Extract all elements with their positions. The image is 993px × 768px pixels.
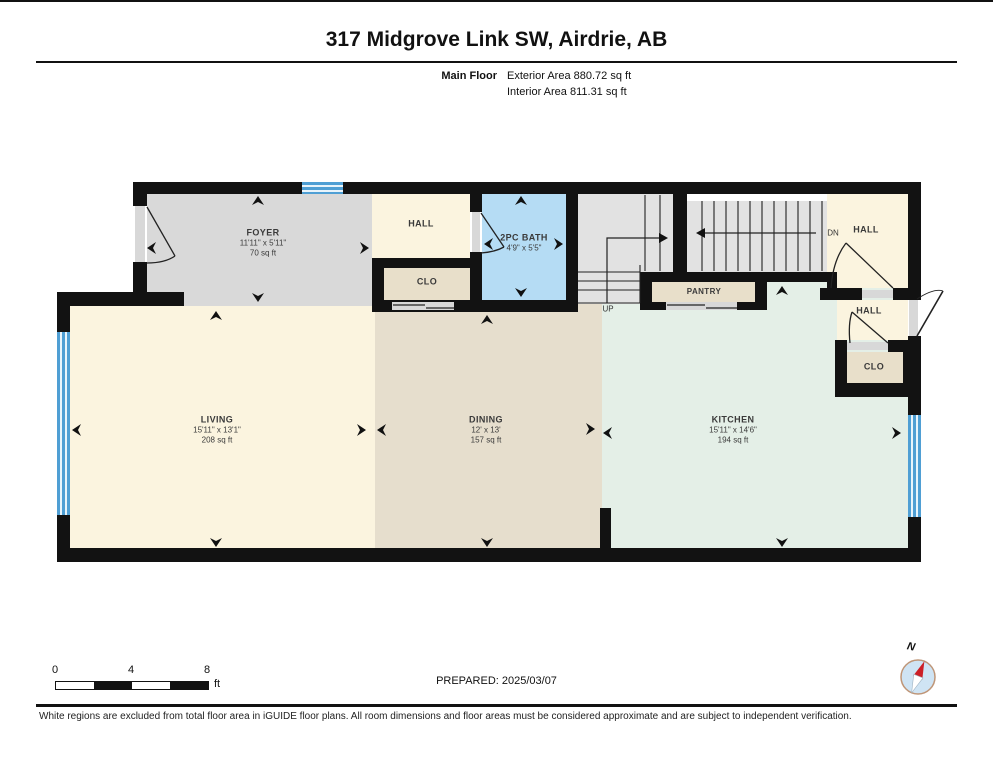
room-label-foyer: FOYER 11'11" x 5'11" 70 sq ft — [240, 227, 287, 258]
header-divider — [36, 61, 957, 63]
hall1-door-opening — [862, 290, 893, 298]
wall-hall1-bottom-right — [893, 288, 921, 300]
wall-stair-middle — [673, 194, 687, 272]
up-stairs-lower-floor — [578, 272, 640, 304]
dining-floor-patch — [578, 303, 602, 312]
room-label-dining: DINING 12' x 13' 157 sq ft — [469, 414, 503, 445]
wall-clo-right-east — [903, 352, 921, 383]
compass-icon — [896, 655, 940, 699]
prepared-date: PREPARED: 2025/03/07 — [0, 675, 993, 687]
pantry-door-opening — [666, 302, 737, 310]
wall-clo-right-north-stub — [888, 340, 921, 352]
dn-stairs-landing — [687, 194, 827, 201]
wall-hall2-south-left — [835, 340, 847, 352]
wall-foyer-west-upper — [133, 182, 147, 206]
exterior-area: Exterior Area 880.72 sq ft — [507, 70, 631, 82]
window-kitchen-east — [908, 415, 921, 517]
wall-stair-hall-connector — [827, 272, 837, 300]
compass-north-label: N — [906, 640, 916, 653]
room-label-clo-right: CLO — [864, 361, 884, 372]
interior-area: Interior Area 811.31 sq ft — [507, 86, 627, 98]
floorplan-page: 317 Midgrove Link SW, Airdrie, AB Main F… — [0, 0, 993, 768]
window-living-west — [57, 332, 70, 515]
dn-stairs-floor — [687, 201, 827, 272]
wall-clo-right-south — [835, 383, 921, 397]
wall-pantry-south-left — [640, 302, 666, 310]
room-label-hall-upper-right: HALL — [853, 224, 879, 235]
footer-divider — [36, 704, 957, 707]
stairs-down-label: DN — [827, 229, 839, 238]
wall-living-north-stub — [57, 292, 184, 306]
wall-bath-east — [566, 194, 578, 312]
room-label-hall-mid-right: HALL — [856, 305, 882, 316]
room-label-living: LIVING 15'11" x 13'1" 208 sq ft — [193, 414, 241, 445]
wall-bottom — [57, 548, 921, 562]
wall-east-upper — [908, 182, 921, 288]
window-foyer-top — [302, 182, 343, 194]
room-label-kitchen: KITCHEN 15'11" x 14'6" 194 sq ft — [709, 414, 757, 445]
wall-east-lower — [908, 517, 921, 562]
clo-right-door-opening — [847, 342, 888, 350]
wall-stair-south — [640, 272, 836, 282]
wall-pantry-south-right — [737, 302, 767, 310]
up-stairs-floor — [578, 194, 673, 272]
wall-top — [133, 182, 921, 194]
side-door-opening — [909, 300, 918, 336]
hall-upper-right-floor — [827, 194, 908, 288]
room-label-hall-top: HALL — [408, 218, 434, 229]
room-label-clo-foyer: CLO — [417, 276, 437, 287]
top-border — [0, 0, 993, 2]
bath-door-opening — [472, 212, 480, 252]
room-label-pantry: PANTRY — [687, 287, 721, 297]
disclaimer-text: White regions are excluded from total fl… — [39, 711, 959, 722]
wall-dining-kitchen-stub — [600, 508, 611, 548]
wall-east-below-clo — [908, 397, 921, 415]
clo-foyer-door-opening — [392, 302, 454, 310]
room-label-bath: 2PC BATH 4'9" x 5'5" — [500, 232, 548, 253]
wall-clo-foyer-north — [372, 258, 470, 268]
floor-label: Main Floor — [435, 70, 497, 82]
stairs-up-label: UP — [602, 305, 613, 314]
entry-door-opening — [135, 206, 145, 262]
page-title: 317 Midgrove Link SW, Airdrie, AB — [0, 28, 993, 52]
wall-west-upper — [57, 306, 70, 332]
wall-bath-west-upper — [470, 194, 482, 212]
